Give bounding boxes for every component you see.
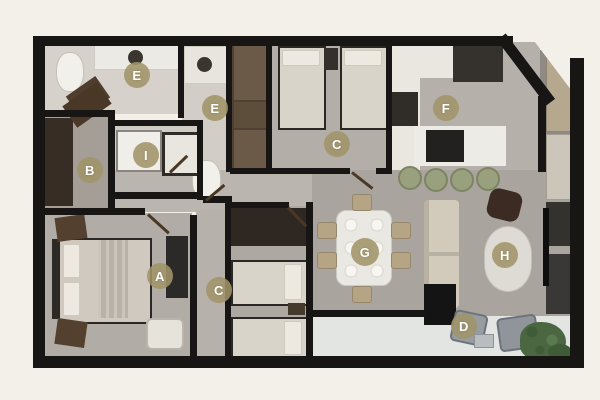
planter-box bbox=[424, 284, 456, 325]
room-marker-h: H bbox=[492, 242, 518, 268]
dining-chair bbox=[317, 252, 337, 269]
wall bbox=[197, 120, 203, 200]
tv-screen bbox=[543, 208, 549, 286]
refrigerator bbox=[453, 44, 503, 82]
bedside-bench bbox=[54, 214, 87, 242]
exterior-wall-bottom bbox=[33, 356, 584, 368]
cooktop bbox=[426, 130, 464, 162]
wall bbox=[272, 168, 350, 174]
drawer-unit bbox=[288, 303, 305, 315]
terrace-table bbox=[474, 334, 494, 348]
wall bbox=[33, 208, 145, 215]
bar-stool bbox=[424, 168, 448, 192]
room-marker-e1: E bbox=[124, 62, 150, 88]
hanging-clothes-2 bbox=[234, 130, 266, 168]
pillow bbox=[282, 50, 320, 66]
bar-stool bbox=[450, 168, 474, 192]
blanket bbox=[98, 240, 128, 318]
wall bbox=[45, 110, 115, 117]
closet-shelf bbox=[234, 102, 266, 128]
wall bbox=[225, 202, 289, 208]
wall bbox=[112, 192, 203, 199]
room-marker-g: G bbox=[351, 238, 379, 266]
exterior-wall-right bbox=[570, 58, 584, 368]
pillow-4 bbox=[284, 321, 302, 355]
kitchen-counter bbox=[390, 44, 456, 78]
room-marker-f: F bbox=[433, 95, 459, 121]
dining-chair bbox=[352, 286, 372, 303]
bedside-bench-2 bbox=[54, 318, 87, 348]
room-marker-e2: E bbox=[202, 95, 228, 121]
dining-chair bbox=[391, 222, 411, 239]
dining-chair bbox=[352, 194, 372, 211]
exterior-wall-left bbox=[33, 36, 45, 368]
pillow bbox=[63, 282, 80, 316]
pillow-3 bbox=[284, 264, 302, 300]
floorplan-image: E E B I C F A C G H D bbox=[0, 0, 600, 400]
room-marker-i: I bbox=[133, 142, 159, 168]
dining-chair bbox=[391, 252, 411, 269]
wall bbox=[178, 40, 184, 118]
interior-wall-utility bbox=[538, 96, 546, 172]
tv-console bbox=[546, 254, 572, 314]
wall bbox=[266, 40, 272, 172]
sink-basin-icon-2 bbox=[197, 57, 212, 72]
bathtub bbox=[146, 318, 184, 350]
oven bbox=[392, 92, 418, 126]
room-marker-d: D bbox=[451, 313, 477, 339]
bar-stool bbox=[398, 166, 422, 190]
room-marker-c2: C bbox=[206, 277, 232, 303]
wall bbox=[386, 40, 392, 174]
window-wall-terrace bbox=[313, 310, 425, 317]
nightstand bbox=[324, 48, 338, 70]
dining-chair bbox=[317, 222, 337, 239]
wall bbox=[230, 168, 272, 174]
pillow bbox=[63, 244, 80, 278]
room-marker-a: A bbox=[147, 263, 173, 289]
pillow-2 bbox=[344, 50, 382, 66]
exterior-wall-top bbox=[33, 36, 513, 46]
room-marker-c1: C bbox=[324, 131, 350, 157]
wall bbox=[190, 215, 197, 356]
wall bbox=[112, 120, 203, 126]
wardrobe bbox=[43, 118, 73, 206]
wall bbox=[376, 168, 392, 174]
utility-unit bbox=[546, 202, 572, 246]
hanging-clothes bbox=[234, 46, 266, 100]
shower-tray bbox=[162, 132, 202, 176]
room-marker-b: B bbox=[77, 157, 103, 183]
